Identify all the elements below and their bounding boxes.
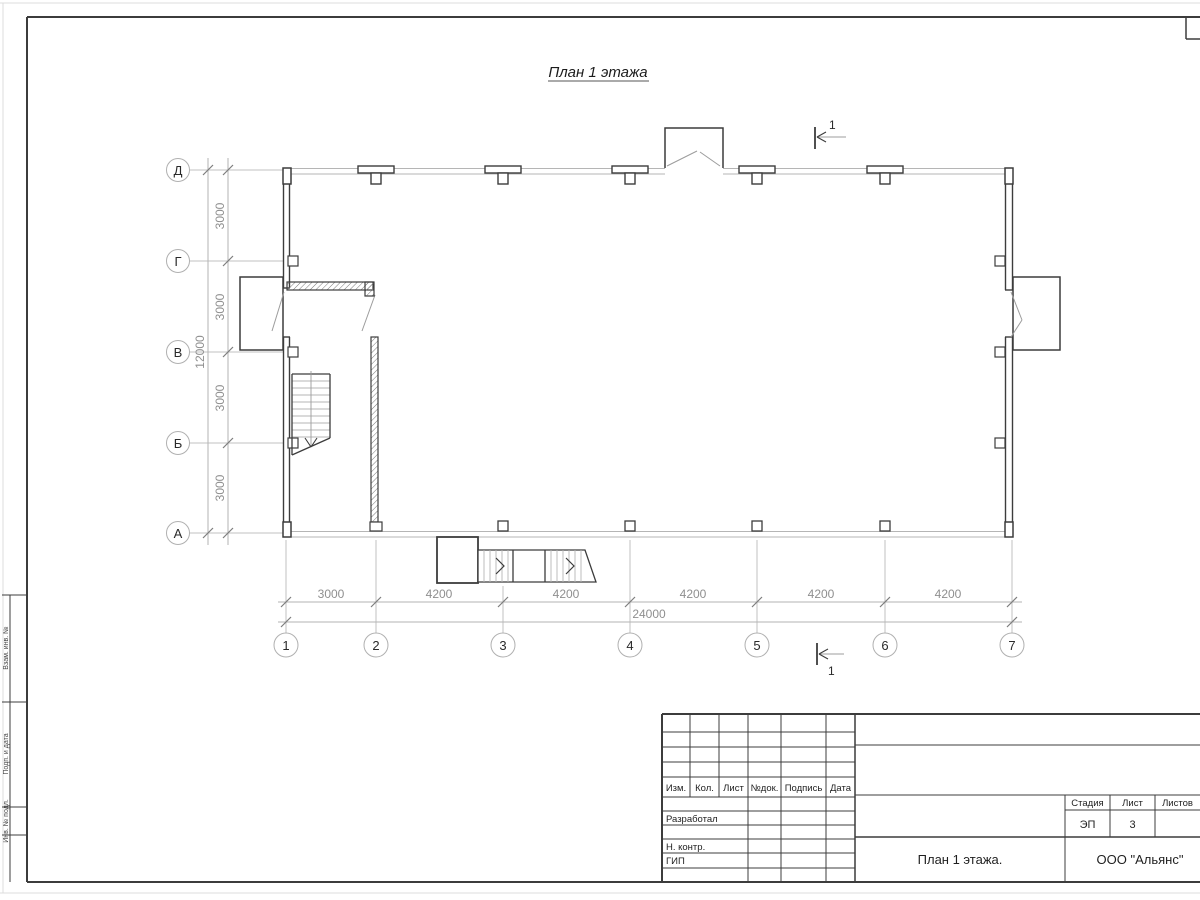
titleblock-col-list: Лист <box>723 783 744 794</box>
wall-pilasters <box>288 256 1005 448</box>
axis-label: В <box>174 345 183 360</box>
titleblock-role-ncontrol: Н. контр. <box>666 842 705 853</box>
dim-label: 4200 <box>808 587 835 601</box>
sheet-label: Лист <box>1122 798 1143 809</box>
titleblock-role-developed: Разработал <box>666 814 718 825</box>
axis-label: 7 <box>1008 638 1015 653</box>
side-stamp-label: Взам. инв. № <box>3 626 10 669</box>
axis-label: 4 <box>626 638 633 653</box>
section-label: 1 <box>828 664 835 678</box>
drawing-sheet: Взам. инв. № Подп. и дата Инв. № подл. П… <box>0 0 1200 900</box>
dim-label: 4200 <box>426 587 453 601</box>
dim-label: 3000 <box>213 384 227 411</box>
titleblock-col-kol: Кол. <box>695 783 714 794</box>
horizontal-axes: 1 2 3 4 5 6 7 <box>274 633 1024 657</box>
page-title: План 1 этажа <box>548 64 647 81</box>
porch-right <box>1013 277 1060 350</box>
titleblock-col-dok: №док. <box>751 783 779 794</box>
dim-label: 4200 <box>935 587 962 601</box>
vestibule-top <box>665 128 723 168</box>
porch-left <box>240 277 283 350</box>
building-walls <box>283 166 1013 537</box>
titleblock-col-izm: Изм. <box>666 783 686 794</box>
entrance-landing <box>437 537 478 583</box>
axis-label: Б <box>174 436 183 451</box>
horizontal-dimensions: 3000 4200 4200 4200 4200 4200 24000 <box>278 540 1022 633</box>
titleblock-role-gip: ГИП <box>666 856 685 867</box>
dim-label: 4200 <box>553 587 580 601</box>
axis-label: 2 <box>372 638 379 653</box>
sheet-frame <box>27 17 1200 882</box>
titleblock-drawing-title: План 1 этажа. <box>918 852 1003 867</box>
dim-total-label: 24000 <box>632 607 666 621</box>
dim-label: 3000 <box>213 474 227 501</box>
axis-label: 3 <box>499 638 506 653</box>
axis-label: 5 <box>753 638 760 653</box>
section-label: 1 <box>829 118 836 132</box>
axis-label: А <box>174 526 183 541</box>
door-swings <box>272 292 1022 337</box>
bottom-wall-columns <box>498 521 890 531</box>
axis-label: 6 <box>881 638 888 653</box>
dim-total-label: 12000 <box>193 335 207 369</box>
titleblock-col-podpis: Подпись <box>785 783 823 794</box>
titleblock-company: ООО "Альянс" <box>1097 852 1184 867</box>
dim-label: 4200 <box>680 587 707 601</box>
side-stamp-label: Подп. и дата <box>3 733 10 774</box>
sheet-value: 3 <box>1129 819 1135 831</box>
sheets-label: Листов <box>1162 798 1193 809</box>
door-swing <box>667 151 720 166</box>
axis-label: Д <box>174 163 183 178</box>
title-block: Изм. Кол. Лист №док. Подпись Дата Разраб… <box>662 714 1200 882</box>
entrance-stairs <box>437 537 596 583</box>
stage-label: Стадия <box>1071 798 1103 809</box>
axis-label: 1 <box>282 638 289 653</box>
drawing-title: План 1 этажа <box>548 64 649 81</box>
section-mark-top: 1 <box>815 118 846 149</box>
dim-label: 3000 <box>318 587 345 601</box>
stage-value: ЭП <box>1080 819 1096 831</box>
dim-label: 3000 <box>213 202 227 229</box>
titleblock-col-data: Дата <box>830 783 852 794</box>
floor-plan-svg: Взам. инв. № Подп. и дата Инв. № подл. П… <box>0 0 1200 900</box>
axis-label: Г <box>174 254 181 269</box>
partition-walls <box>287 282 382 531</box>
side-stamp-label: Инв. № подл. <box>3 799 10 843</box>
dim-label: 3000 <box>213 293 227 320</box>
section-mark-bottom: 1 <box>817 643 844 678</box>
side-stamp: Взам. инв. № Подп. и дата Инв. № подл. <box>2 595 27 882</box>
